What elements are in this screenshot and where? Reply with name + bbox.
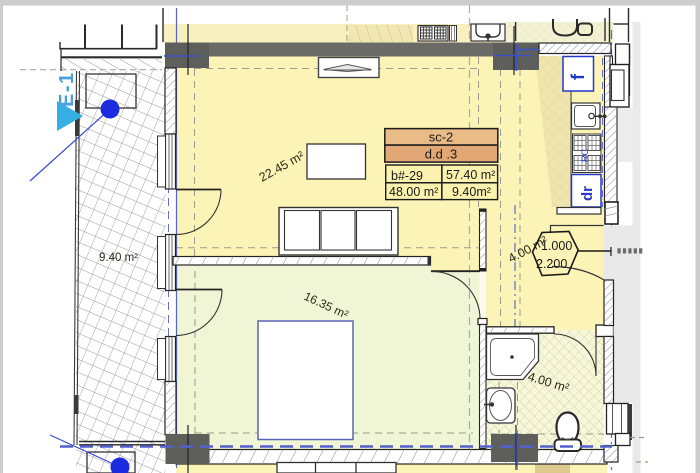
svg-text:2.200: 2.200 <box>536 257 567 271</box>
svg-text:f: f <box>568 73 588 80</box>
svg-text:48.00 m²: 48.00 m² <box>389 185 438 199</box>
svg-text:dr: dr <box>579 186 596 201</box>
svg-text:9.40 m²: 9.40 m² <box>99 252 138 264</box>
svg-text:b#-29: b#-29 <box>391 169 423 183</box>
svg-text:E-1: E-1 <box>56 71 78 107</box>
svg-text:d.d .3: d.d .3 <box>425 147 458 162</box>
svg-text:RC: RC <box>580 149 590 162</box>
svg-text:9.40m²: 9.40m² <box>452 185 491 199</box>
svg-text:1.000: 1.000 <box>541 239 572 253</box>
svg-text:sc-2: sc-2 <box>429 130 454 145</box>
svg-text:57.40 m²: 57.40 m² <box>446 168 495 182</box>
